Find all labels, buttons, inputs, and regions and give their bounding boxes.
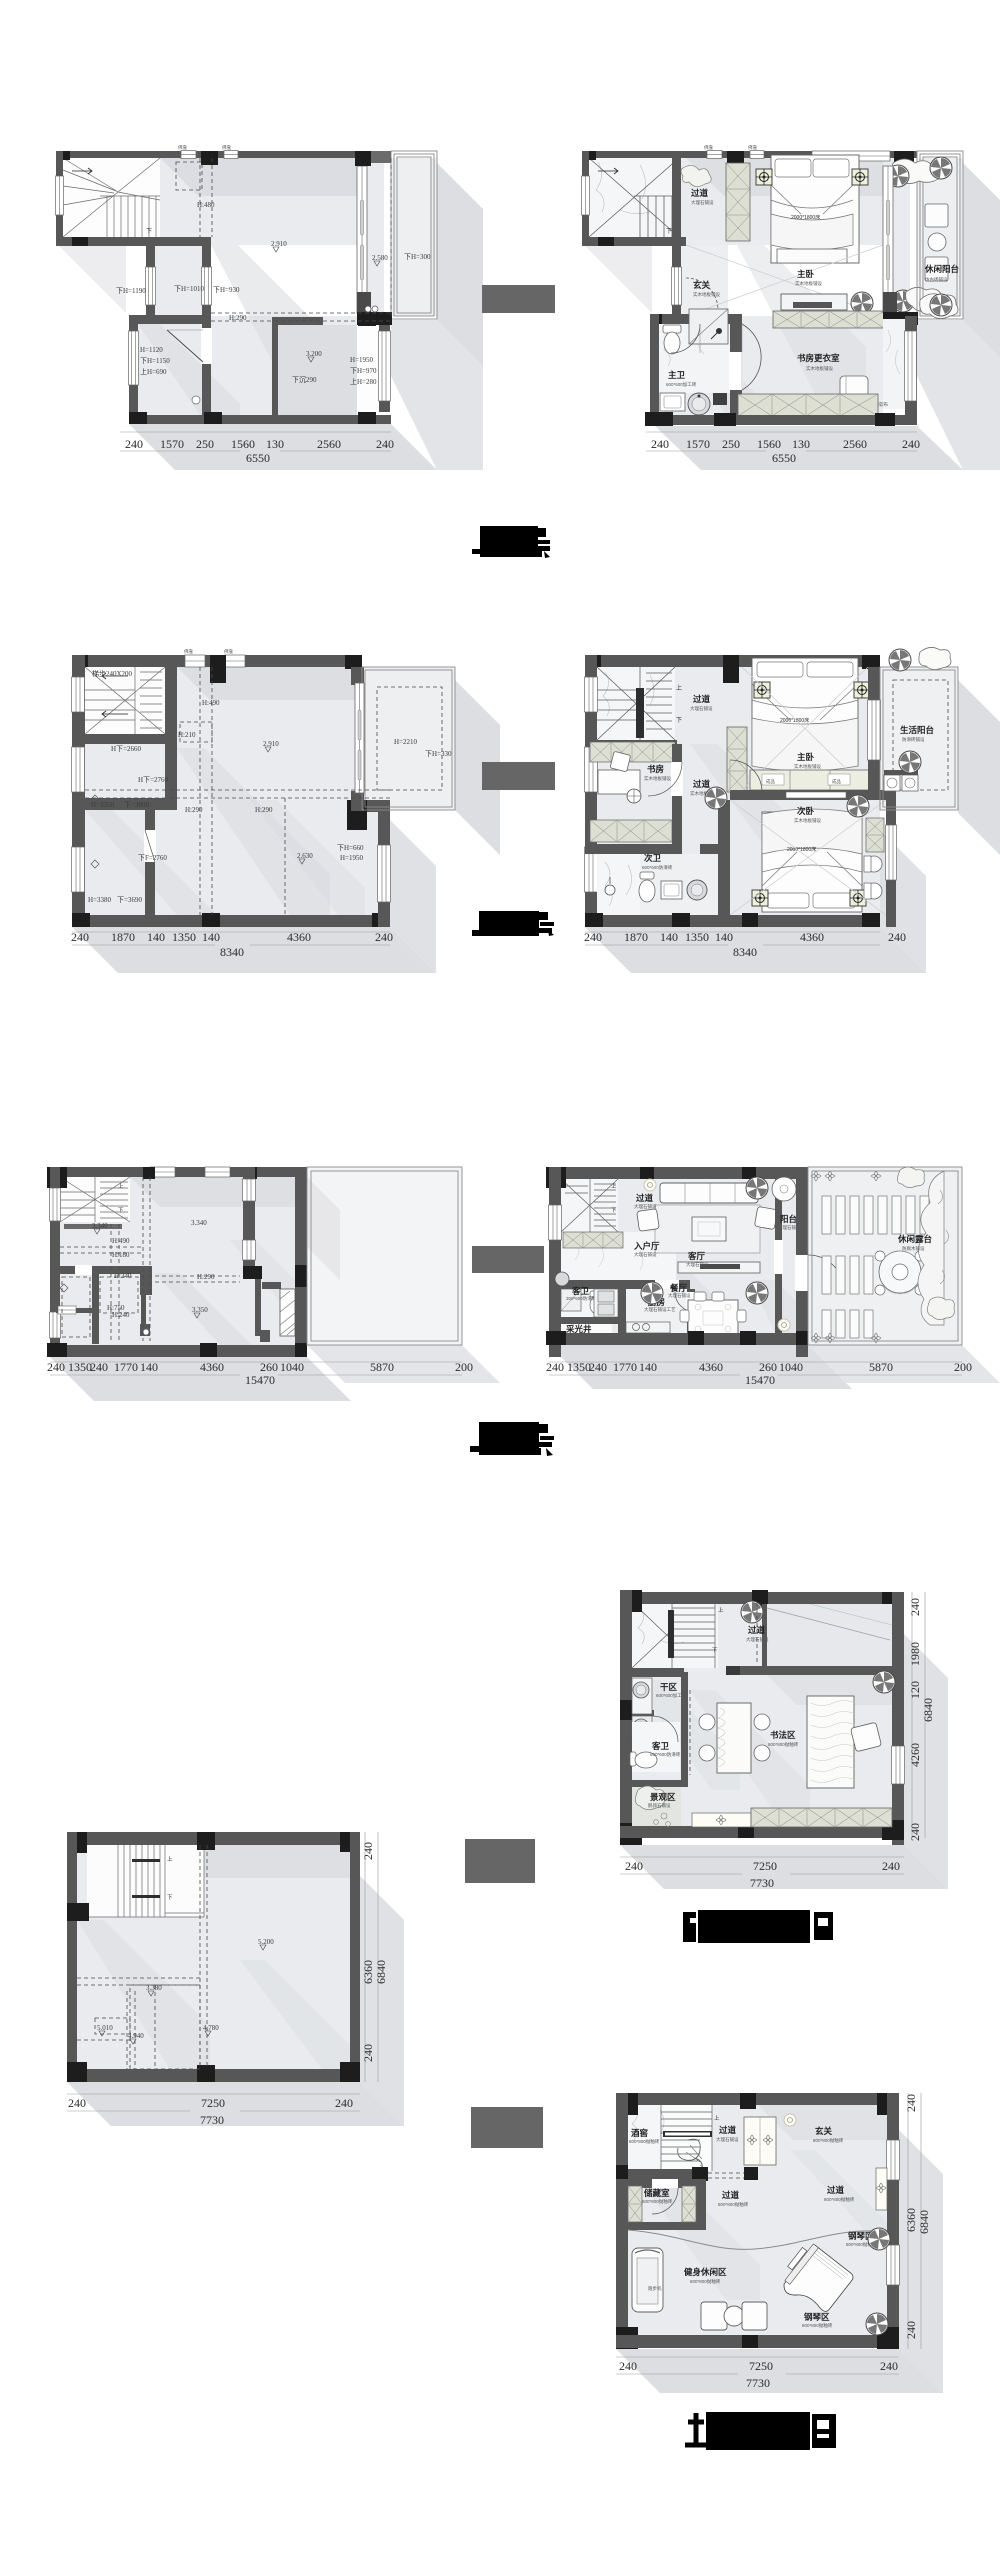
svg-text:H:340: H:340 [114,1272,132,1280]
svg-text:过道: 过道 [636,1193,654,1203]
svg-text:主卧: 主卧 [797,752,815,762]
svg-text:6550: 6550 [772,451,796,465]
svg-text:书法区: 书法区 [770,1730,796,1740]
svg-text:H:490: H:490 [112,1237,130,1245]
svg-text:过道: 过道 [719,2125,737,2135]
svg-text:玄关: 玄关 [815,2126,833,2136]
svg-text:H=1120: H=1120 [140,346,163,354]
svg-text:5870: 5870 [869,1360,893,1374]
svg-text:4360: 4360 [200,1360,224,1374]
svg-text:1770: 1770 [114,1360,138,1374]
svg-text:1870: 1870 [111,930,135,944]
svg-text:140: 140 [715,930,733,944]
svg-text:6840: 6840 [921,1698,935,1722]
svg-text:上H=690: 上H=690 [140,367,167,376]
svg-text:佛龛: 佛龛 [748,144,757,151]
svg-text:次卧: 次卧 [797,806,815,816]
svg-text:6360: 6360 [361,1960,375,1984]
svg-text:240: 240 [375,930,393,944]
svg-text:H:480: H:480 [197,201,215,209]
svg-text:1350: 1350 [685,930,709,944]
svg-text:梯步240X200: 梯步240X200 [92,669,133,678]
svg-text:入户厅: 入户厅 [633,1241,660,1251]
svg-text:防滑砖铺设: 防滑砖铺设 [902,736,925,743]
svg-text:大理石铺设: 大理石铺设 [690,705,713,712]
svg-text:240: 240 [90,1360,108,1374]
svg-text:600*600防滑砖: 600*600防滑砖 [650,1751,681,1758]
svg-text:下H=300: 下H=300 [404,253,431,261]
svg-text:过道: 过道 [827,2185,845,2195]
svg-text:佛龛: 佛龛 [224,648,233,655]
svg-text:H=2210: H=2210 [394,738,418,746]
svg-text:800*800抛釉砖: 800*800抛釉砖 [690,2278,721,2285]
svg-text:240: 240 [880,2359,898,2373]
svg-text:240: 240 [335,2096,353,2110]
svg-text:实木地板铺设: 实木地板铺设 [795,280,822,287]
svg-text:240: 240 [888,930,906,944]
svg-text:采光井: 采光井 [565,1324,592,1334]
svg-text:上: 上 [714,2114,720,2122]
svg-text:佛龛: 佛龛 [222,144,231,151]
svg-text:240: 240 [619,2359,637,2373]
svg-text:餐厅: 餐厅 [669,1283,688,1293]
svg-text:2560: 2560 [317,437,341,451]
svg-text:6840: 6840 [374,1960,388,1984]
svg-text:1560: 1560 [231,437,255,451]
svg-text:800*800抛釉砖: 800*800抛釉砖 [813,2137,844,2144]
svg-text:H=3380: H=3380 [88,896,112,904]
svg-text:120: 120 [908,1681,922,1699]
svg-text:H=1950: H=1950 [350,356,374,364]
svg-text:景观区: 景观区 [650,1792,676,1802]
svg-text:实木地板铺设: 实木地板铺设 [794,817,821,824]
svg-text:下: 下 [712,1647,718,1654]
svg-text:主卧: 主卧 [797,269,815,279]
svg-text:鹅卵石铺设: 鹅卵石铺设 [648,1802,671,1809]
svg-text:240: 240 [908,1598,922,1616]
svg-text:上H=280: 上H=280 [350,377,377,386]
svg-text:1870: 1870 [624,930,648,944]
svg-text:1040: 1040 [280,1360,304,1374]
svg-text:下H=1150: 下H=1150 [140,357,170,365]
svg-text:240: 240 [904,2094,918,2112]
svg-text:4360: 4360 [699,1360,723,1374]
svg-text:1350: 1350 [567,1360,591,1374]
svg-text:大理石铺设工艺: 大理石铺设工艺 [644,1306,676,1313]
svg-text:大理石铺设: 大理石铺设 [686,1261,709,1268]
svg-text:1570: 1570 [686,437,710,451]
svg-text:800*800抛釉砖: 800*800抛釉砖 [768,1741,799,1748]
svg-text:H下=2760: H下=2760 [138,776,169,784]
svg-text:过道: 过道 [722,2190,740,2200]
svg-text:跑步机: 跑步机 [648,2285,662,2292]
svg-text:600*600加工砖: 600*600加工砖 [656,1692,687,1699]
svg-text:成品: 成品 [766,778,775,785]
svg-text:15470: 15470 [745,1373,775,1387]
svg-text:240: 240 [361,1842,375,1860]
svg-text:下=3690: 下=3690 [117,896,142,904]
svg-text:下: 下 [146,228,152,235]
svg-text:书房: 书房 [647,764,664,774]
svg-text:大理石铺设: 大理石铺设 [716,2136,739,2143]
svg-text:7250: 7250 [749,2359,773,2373]
svg-text:下: 下 [167,1894,173,1901]
svg-text:佛龛: 佛龛 [704,144,713,151]
svg-text:实木地板铺设: 实木地板铺设 [806,365,833,372]
svg-text:H:290: H:290 [229,314,247,322]
svg-text:下H=970: 下H=970 [350,367,377,375]
svg-text:6550: 6550 [246,451,270,465]
svg-text:7730: 7730 [746,2376,770,2390]
svg-text:240: 240 [361,2044,375,2062]
svg-text:240: 240 [546,1360,564,1374]
svg-text:佛龛: 佛龛 [178,144,187,151]
svg-text:240: 240 [71,930,89,944]
svg-text:下=3800: 下=3800 [124,801,149,809]
svg-text:140: 140 [660,930,678,944]
svg-text:1770: 1770 [613,1360,637,1374]
svg-text:休闲阳台: 休闲阳台 [924,264,960,274]
svg-text:钢琴区: 钢琴区 [804,2312,830,2322]
svg-text:下H=1010: 下H=1010 [174,285,205,293]
svg-text:140: 140 [140,1360,158,1374]
svg-text:240: 240 [376,437,394,451]
svg-text:主卫: 主卫 [668,370,686,380]
svg-text:下H=930: 下H=930 [213,286,240,294]
svg-text:储藏室: 储藏室 [643,2188,670,2198]
svg-text:下沉290: 下沉290 [292,376,317,384]
svg-text:7250: 7250 [753,1859,777,1873]
svg-text:240: 240 [584,930,602,944]
svg-text:15470: 15470 [245,1373,275,1387]
svg-text:H:750: H:750 [107,1304,125,1312]
svg-text:下H=330: 下H=330 [425,750,452,758]
svg-text:260: 260 [759,1360,777,1374]
svg-text:下: 下 [118,1207,124,1214]
svg-text:200: 200 [954,1360,972,1374]
svg-text:6840: 6840 [917,2210,931,2234]
svg-text:1980: 1980 [908,1642,922,1666]
svg-text:H:240: H:240 [112,1311,130,1319]
svg-text:7250: 7250 [201,2096,225,2110]
svg-text:1570: 1570 [160,437,184,451]
svg-text:健身休闲区: 健身休闲区 [684,2267,727,2277]
svg-text:下H=1190: 下H=1190 [116,287,146,295]
svg-text:240: 240 [651,437,669,451]
svg-text:H=1950: H=1950 [340,854,364,862]
svg-text:7730: 7730 [200,2113,224,2127]
svg-text:1560: 1560 [757,437,781,451]
svg-text:过道: 过道 [691,188,709,198]
svg-text:130: 130 [266,437,284,451]
svg-text:上: 上 [718,1606,724,1614]
svg-text:休闲露台: 休闲露台 [897,1234,933,1244]
svg-text:5870: 5870 [370,1360,394,1374]
svg-text:8340: 8340 [733,945,757,959]
svg-text:下H=660: 下H=660 [337,844,364,852]
svg-text:6360: 6360 [904,2208,918,2232]
svg-text:240: 240 [68,2096,86,2110]
svg-text:下: 下 [611,1207,617,1214]
svg-text:下: 下 [676,717,682,724]
svg-text:1040: 1040 [779,1360,803,1374]
svg-text:2000*1800床: 2000*1800床 [791,214,820,221]
svg-text:250: 250 [722,437,740,451]
svg-text:2000*1800床: 2000*1800床 [787,846,816,853]
svg-text:H:290: H:290 [255,806,273,814]
svg-text:防腐木铺设: 防腐木铺设 [902,1245,925,1252]
svg-text:下F=2760: 下F=2760 [138,854,167,862]
svg-text:生活阳台: 生活阳台 [900,725,935,735]
svg-text:上: 上 [167,1855,173,1863]
svg-text:H:180: H:180 [112,1251,130,1259]
svg-text:成品: 成品 [832,778,841,785]
svg-text:H:290: H:290 [197,1273,215,1281]
svg-text:240: 240 [125,437,143,451]
svg-text:2560: 2560 [843,437,867,451]
svg-text:大理石铺设: 大理石铺设 [691,199,714,206]
svg-text:600*600加工砖: 600*600加工砖 [666,381,697,388]
svg-text:7730: 7730 [750,1876,774,1890]
svg-text:4360: 4360 [287,930,311,944]
svg-text:240: 240 [589,1360,607,1374]
svg-text:大理石铺设: 大理石铺设 [746,1636,769,1643]
svg-text:干区: 干区 [660,1682,678,1692]
svg-text:240: 240 [902,437,920,451]
svg-text:大理石铺设: 大理石铺设 [634,1251,657,1258]
svg-text:佛龛: 佛龛 [184,648,193,655]
svg-text:240: 240 [904,2321,918,2339]
svg-text:140: 140 [147,930,165,944]
svg-text:240: 240 [908,1823,922,1841]
svg-text:酒窖: 酒窖 [631,2128,649,2138]
svg-text:250: 250 [196,437,214,451]
svg-text:过道: 过道 [693,694,711,704]
svg-text:客卫: 客卫 [571,1286,590,1296]
svg-text:600*600防滑砖: 600*600防滑砖 [642,864,673,871]
svg-text:下: 下 [666,228,672,235]
svg-text:客卫: 客卫 [651,1741,670,1751]
svg-text:玄关: 玄关 [693,280,711,290]
svg-text:上: 上 [611,1182,617,1190]
svg-text:800*800抛釉砖: 800*800抛釉砖 [802,2322,833,2329]
svg-text:H=3350: H=3350 [91,801,115,809]
svg-text:书房更衣室: 书房更衣室 [797,353,840,363]
svg-text:上: 上 [676,684,682,692]
svg-text:800*800抛釉砖: 800*800抛釉砖 [629,2138,660,2145]
svg-text:140: 140 [639,1360,657,1374]
svg-text:240: 240 [882,1859,900,1873]
svg-text:阳台: 阳台 [780,1214,798,1224]
svg-text:140: 140 [202,930,220,944]
svg-text:800*800抛釉砖: 800*800抛釉砖 [718,2201,749,2208]
svg-text:200: 200 [455,1360,473,1374]
svg-text:4360: 4360 [800,930,824,944]
svg-text:实木地板铺设: 实木地板铺设 [794,763,821,770]
svg-text:H:290: H:290 [185,806,203,814]
svg-text:800*800抛釉砖: 800*800抛釉砖 [642,2198,673,2205]
svg-text:240: 240 [625,1859,643,1873]
svg-text:H:490: H:490 [202,699,220,707]
svg-text:800*800抛釉砖: 800*800抛釉砖 [824,2196,855,2203]
svg-text:4260: 4260 [908,1743,922,1767]
svg-text:1350: 1350 [172,930,196,944]
svg-text:仿古砖铺设: 仿古砖铺设 [925,276,948,283]
svg-text:次卫: 次卫 [644,853,662,863]
svg-text:240: 240 [47,1360,65,1374]
svg-text:260: 260 [260,1360,278,1374]
svg-text:大理石铺设: 大理石铺设 [668,1292,691,1299]
svg-text:实木地板铺设: 实木地板铺设 [644,775,671,782]
svg-text:过道: 过道 [693,779,711,789]
svg-text:实木地板铺设: 实木地板铺设 [693,291,720,298]
svg-text:H下=2660: H下=2660 [111,745,142,753]
svg-text:大理石铺设: 大理石铺设 [634,1203,657,1210]
svg-text:3.340: 3.340 [191,1219,207,1227]
svg-text:H:210: H:210 [178,731,196,739]
svg-text:1350: 1350 [68,1360,92,1374]
svg-text:130: 130 [792,437,810,451]
svg-text:8340: 8340 [220,945,244,959]
svg-text:客厅: 客厅 [687,1251,706,1261]
svg-text:上: 上 [118,1182,124,1190]
